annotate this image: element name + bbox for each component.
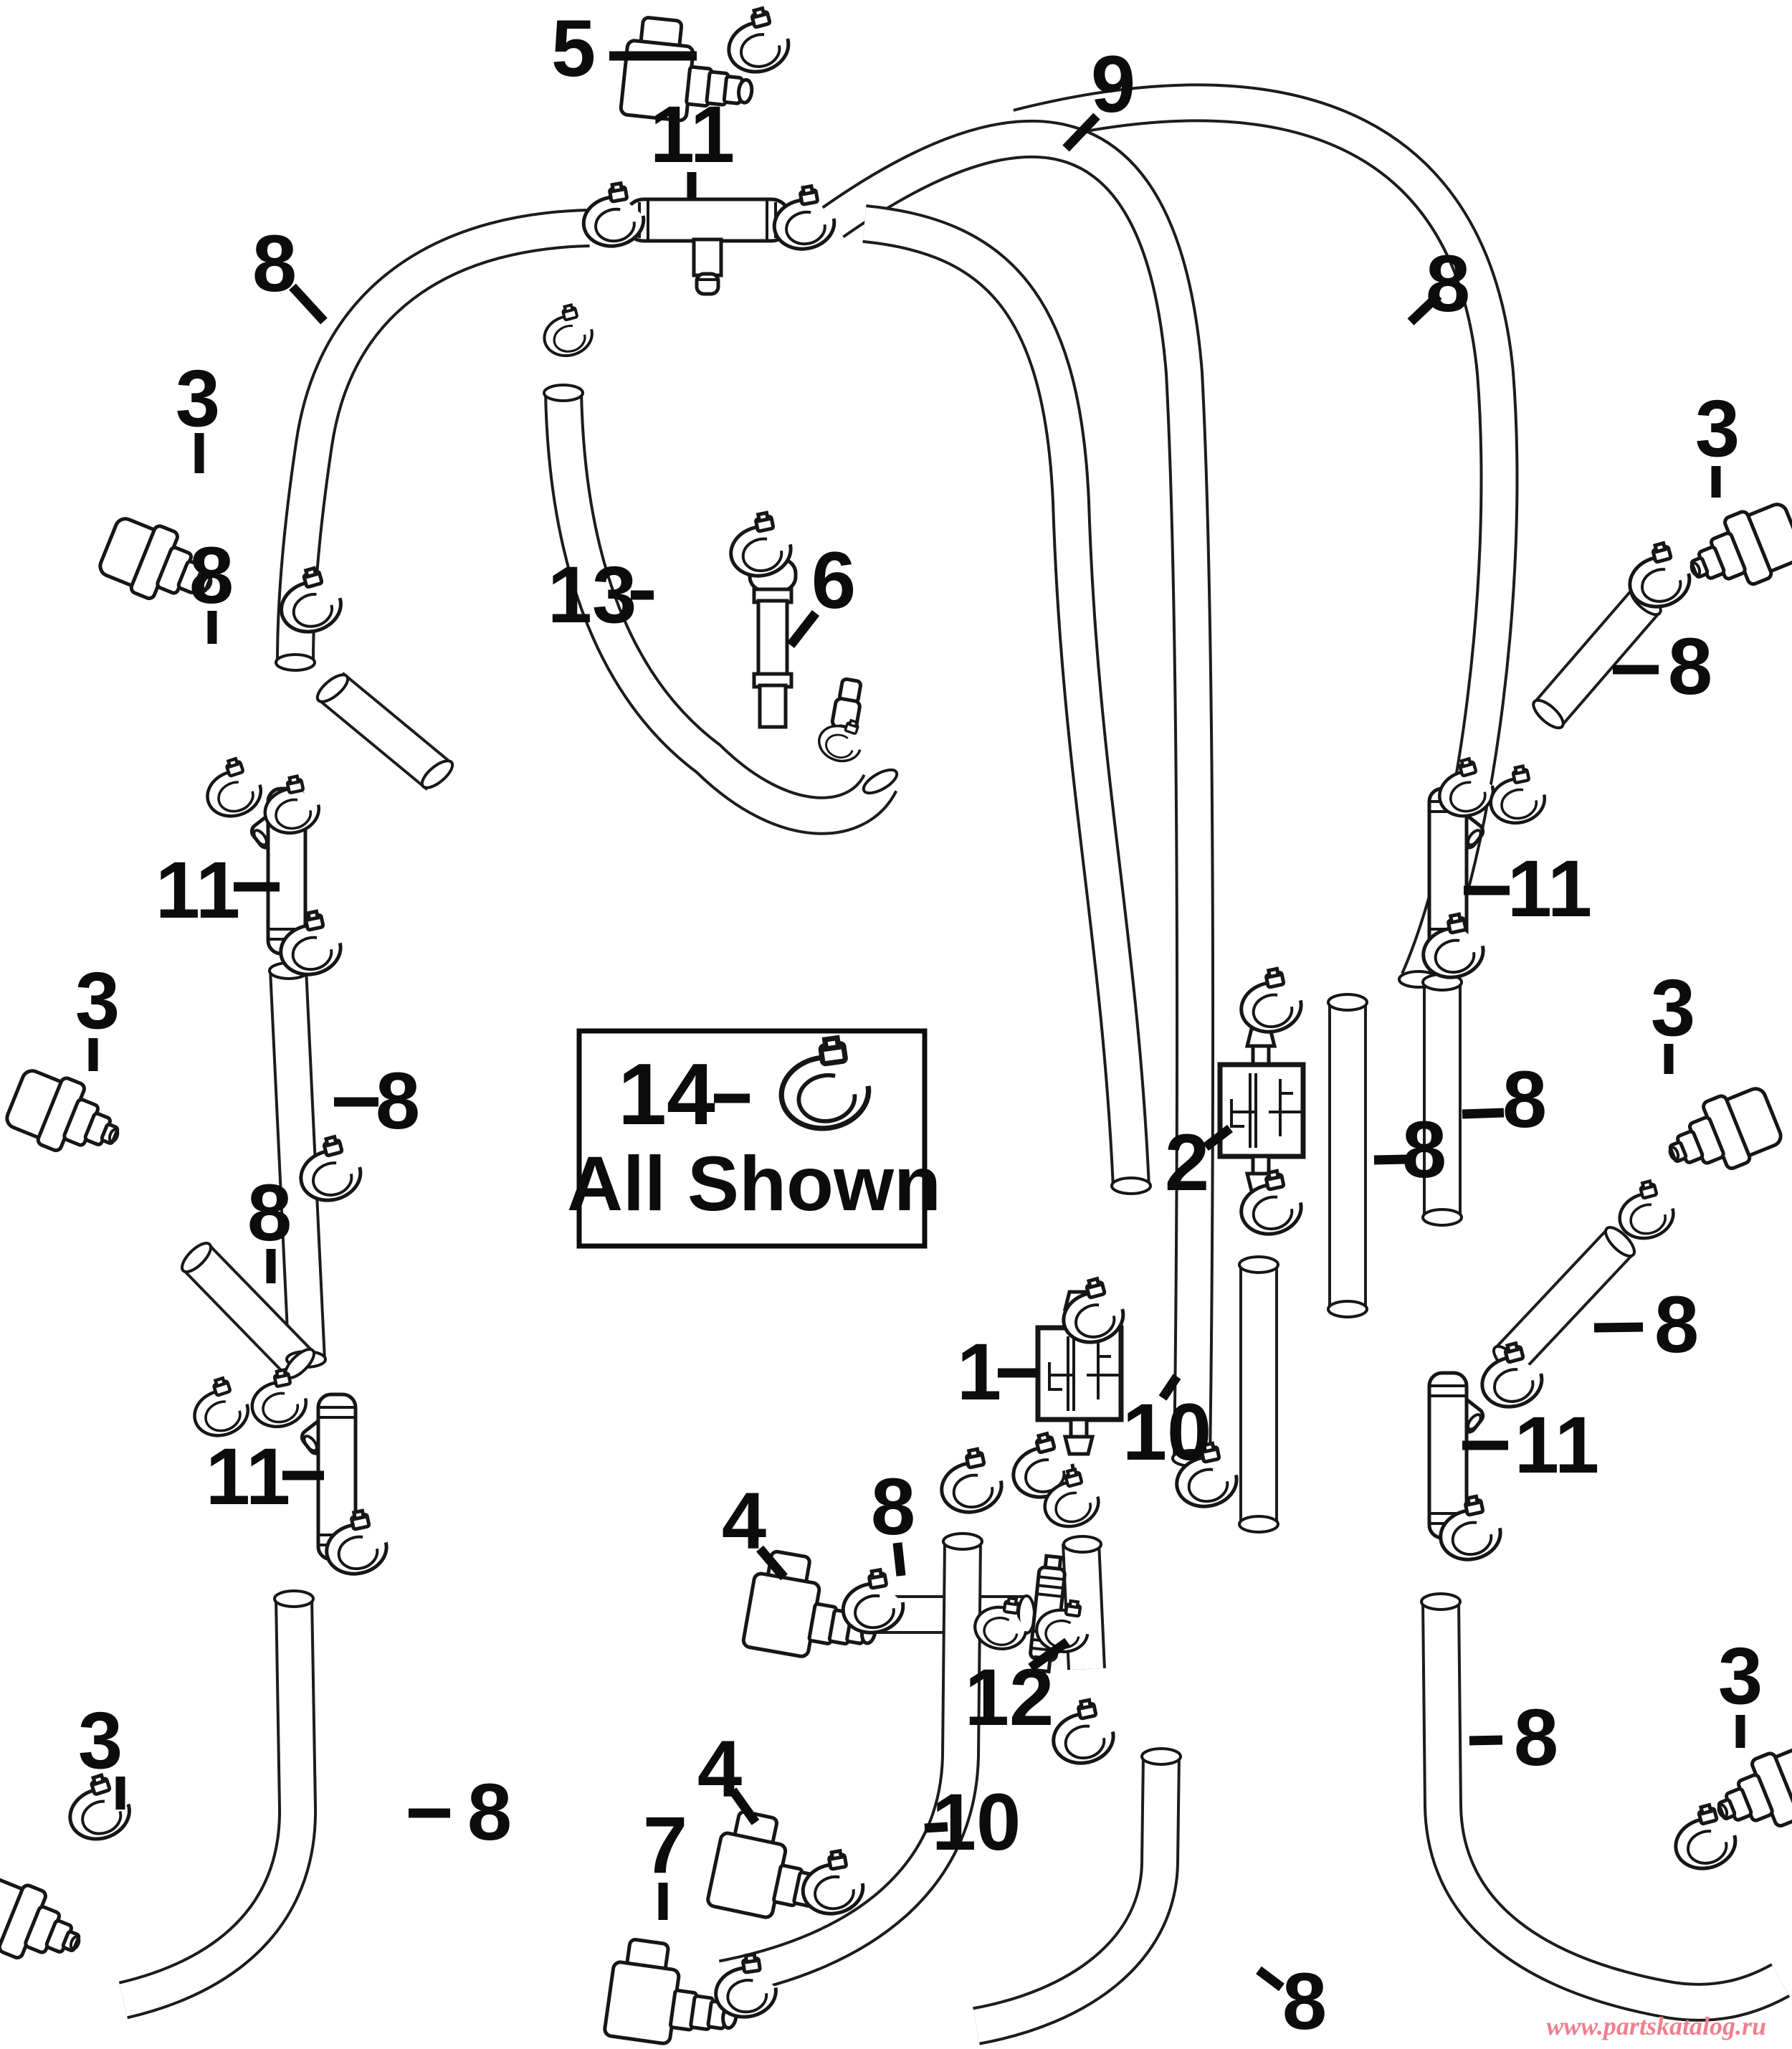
callout-label-3-35: 3 xyxy=(1718,1631,1763,1721)
callout-label-6-8: 6 xyxy=(811,536,856,625)
callout-label-3-26: 3 xyxy=(1695,384,1740,473)
callout-label-11-1: 11 xyxy=(650,90,735,179)
hose-clamp-icon xyxy=(720,4,794,79)
legend-caption: All Shown xyxy=(567,1140,941,1227)
callout-label-8-17: 8 xyxy=(467,1767,512,1857)
callout-label-5-0: 5 xyxy=(551,4,596,93)
callout-label-7-18: 7 xyxy=(643,1800,687,1890)
callout-label-8-2: 8 xyxy=(252,219,297,308)
quick-connect-3-left-mid-icon xyxy=(2,1062,130,1170)
callout-leader-8-34 xyxy=(1469,1740,1502,1741)
callout-label-8-12: 8 xyxy=(376,1056,420,1146)
watermark-text: www.partskatalog.ru xyxy=(1546,2012,1766,2040)
callout-label-3-30: 3 xyxy=(1651,963,1695,1052)
quick-connect-3-right-top-icon xyxy=(1679,496,1792,604)
callout-label-10-24: 10 xyxy=(932,1777,1021,1867)
callout-label-3-13: 3 xyxy=(75,956,120,1045)
callout-label-3-5: 3 xyxy=(176,353,220,443)
hose-clamp-icon xyxy=(935,1445,1006,1517)
tee-connector-11-icon xyxy=(625,199,790,294)
callout-label-8-14: 8 xyxy=(247,1168,292,1258)
callout-leader-8-25 xyxy=(1259,1970,1282,1987)
hose-8-bottom-left xyxy=(123,1597,297,2000)
callout-label-11-28: 11 xyxy=(1507,844,1592,933)
hose-clamp-icon xyxy=(538,302,596,361)
callout-label-8-27: 8 xyxy=(1668,622,1712,711)
callout-label-8-34: 8 xyxy=(1514,1693,1558,1782)
callout-label-1-10: 1 xyxy=(957,1327,1001,1417)
hose-clamp-icon xyxy=(1047,1696,1118,1768)
hose-clamp-icon xyxy=(768,184,838,254)
hose-clamp-icon xyxy=(1234,1167,1306,1239)
callout-label-8-32: 8 xyxy=(1654,1280,1699,1369)
legend-box: 14 All Shown xyxy=(567,1031,941,1246)
check-valve-2-icon xyxy=(1220,1029,1303,1191)
callout-label-3-16: 3 xyxy=(78,1696,123,1785)
callout-leader-8-29 xyxy=(1462,1113,1504,1114)
callout-label-11-33: 11 xyxy=(1515,1400,1599,1490)
hose-clamp-icon xyxy=(1234,965,1306,1037)
callout-leader-8-2 xyxy=(292,287,324,321)
quick-connect-3-left-bottom-icon xyxy=(0,1870,92,1977)
callout-label-8-25: 8 xyxy=(1282,1957,1327,2046)
callout-label-11-15: 11 xyxy=(206,1432,290,1521)
callout-label-9-3: 9 xyxy=(1091,39,1135,129)
quick-connect-3-right-mid-icon xyxy=(1657,1080,1786,1188)
legend-part-number: 14 xyxy=(618,1045,715,1143)
hose-8-top-left xyxy=(295,228,589,661)
callout-labels: 5118983813621118381138748124101083811838… xyxy=(75,4,1763,2046)
callout-label-10-23: 10 xyxy=(1123,1387,1212,1477)
hose-clamp-icon xyxy=(199,754,267,823)
callout-label-8-31: 8 xyxy=(1402,1105,1447,1194)
callout-label-2-9: 2 xyxy=(1165,1118,1209,1207)
callout-label-4-19: 4 xyxy=(722,1476,766,1566)
callout-leader-8-32 xyxy=(1594,1327,1643,1328)
callout-label-12-21: 12 xyxy=(965,1653,1054,1742)
callout-label-4-22: 4 xyxy=(697,1724,742,1814)
callout-label-8-6: 8 xyxy=(189,531,234,620)
callout-label-11-11: 11 xyxy=(156,845,240,935)
hose-clamp-icon xyxy=(246,1366,310,1431)
callout-label-8-20: 8 xyxy=(871,1462,915,1551)
callout-label-8-4: 8 xyxy=(1426,239,1470,328)
callout-label-13-7: 13 xyxy=(548,550,637,640)
callout-label-8-29: 8 xyxy=(1502,1055,1547,1144)
parts-diagram-canvas: 14 All Shown 511898381362111838113874812… xyxy=(0,0,1792,2049)
